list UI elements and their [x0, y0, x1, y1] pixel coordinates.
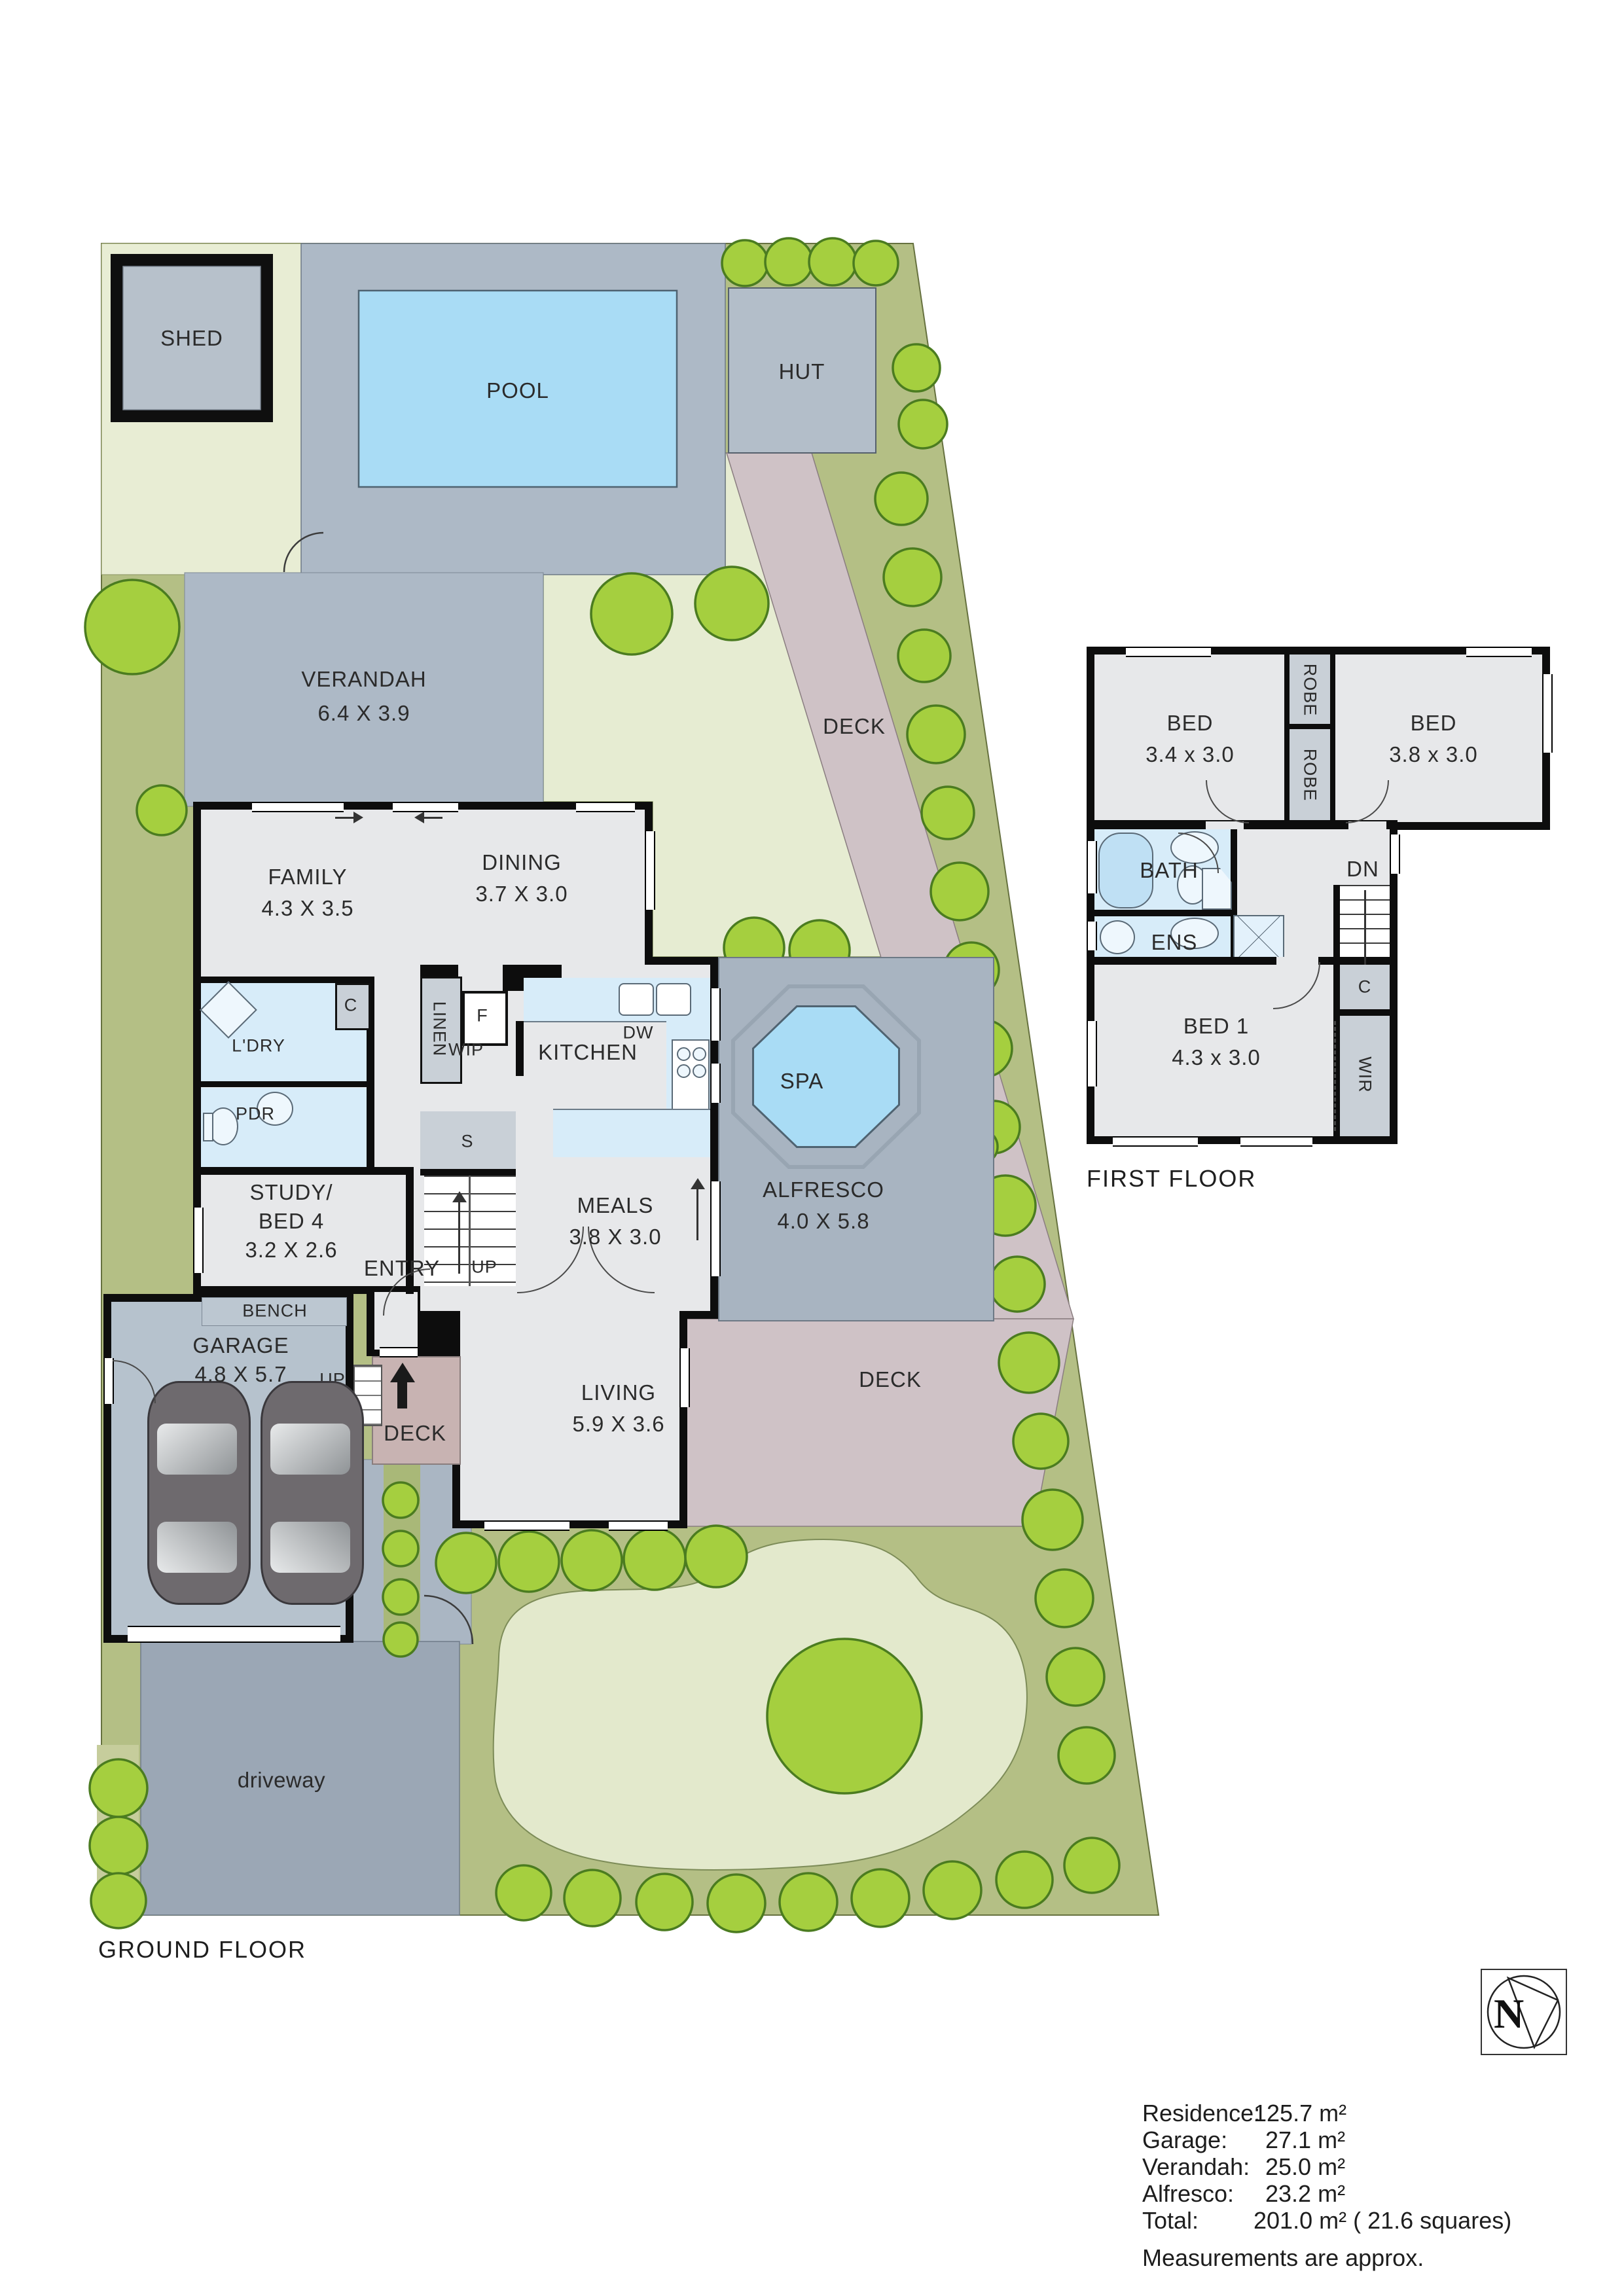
- window: [710, 1064, 721, 1103]
- bed-left-label: BED: [1167, 711, 1214, 736]
- entry-arrow-icon: [390, 1363, 415, 1382]
- window: [710, 988, 721, 1041]
- meals-label: MEALS: [577, 1193, 654, 1218]
- wall: [420, 965, 458, 977]
- wall: [1333, 1009, 1396, 1016]
- robe-upper-label: ROBE: [1300, 664, 1320, 717]
- wir-dashed-line: [1334, 1021, 1336, 1131]
- wall: [1284, 724, 1335, 729]
- alfresco-dims: 4.0 X 5.8: [777, 1209, 869, 1234]
- sliding-door: [710, 1181, 721, 1276]
- shed-label: SHED: [160, 326, 223, 351]
- burner-icon: [677, 1047, 691, 1061]
- area-row: Garage: 27.1 m²: [1142, 2126, 1511, 2153]
- hut-label: HUT: [779, 359, 825, 384]
- garage-door: [128, 1626, 340, 1643]
- dn-label: DN: [1346, 857, 1379, 882]
- window: [1087, 841, 1097, 893]
- bed1-label: BED 1: [1183, 1014, 1249, 1039]
- wir-label: WIR: [1355, 1056, 1375, 1092]
- door-opening: [1348, 821, 1386, 829]
- area-value: 125.7 m²: [1254, 2100, 1346, 2126]
- garage-dims: 4.8 X 5.7: [194, 1362, 287, 1387]
- robe-lower-label: ROBE: [1300, 749, 1320, 802]
- car-rear-window: [157, 1522, 237, 1573]
- window: [1542, 674, 1553, 753]
- alfresco-label: ALFRESCO: [763, 1177, 884, 1202]
- slider-arrow: [424, 817, 442, 819]
- entry-label: ENTRY: [364, 1256, 440, 1281]
- area-row: Residence: 125.7 m²: [1142, 2100, 1511, 2126]
- burner-icon: [693, 1064, 706, 1078]
- cupboard-label: C: [344, 996, 358, 1016]
- car-windshield: [157, 1424, 237, 1475]
- window: [679, 1348, 690, 1407]
- stair-arrow-head: [452, 1191, 467, 1202]
- bench-label: BENCH: [242, 1301, 308, 1321]
- driveway-label: driveway: [238, 1768, 325, 1793]
- front-door: [380, 1347, 418, 1357]
- area-row: Verandah: 25.0 m²: [1142, 2153, 1511, 2180]
- ground-floor-title: GROUND FLOOR: [98, 1936, 306, 1964]
- area-note: Measurements are approx.: [1142, 2244, 1511, 2272]
- family-dims: 4.3 X 3.5: [261, 896, 353, 921]
- area-value: 27.1 m²: [1254, 2126, 1345, 2153]
- deck-rear-label: DECK: [859, 1367, 922, 1392]
- area-label: Garage:: [1142, 2126, 1247, 2153]
- bed-left-dims: 3.4 x 3.0: [1146, 742, 1235, 767]
- area-value: 201.0 m² ( 21.6 squares): [1254, 2207, 1511, 2234]
- window: [576, 802, 635, 812]
- area-schedule: Residence: 125.7 m² Garage: 27.1 m² Vera…: [1142, 2100, 1511, 2272]
- study-label-2: BED 4: [259, 1209, 324, 1234]
- wall: [201, 1167, 406, 1175]
- area-label: Residence:: [1142, 2100, 1247, 2126]
- living-dims: 5.9 X 3.6: [572, 1412, 664, 1437]
- entry-deck-label: DECK: [384, 1421, 446, 1446]
- door-opening: [1206, 821, 1244, 829]
- stair-arrow-line: [458, 1202, 460, 1274]
- fridge-label: F: [477, 1006, 488, 1026]
- ff-closet-label: C: [1358, 977, 1372, 997]
- pool-label: POOL: [486, 378, 549, 403]
- slider-arrow: [353, 812, 363, 823]
- car-icon: [261, 1381, 364, 1605]
- store-label: S: [461, 1132, 473, 1152]
- verandah-dims: 6.4 X 3.9: [317, 701, 410, 726]
- window: [609, 1520, 668, 1531]
- window: [393, 802, 458, 812]
- window: [1240, 1136, 1312, 1147]
- window: [1466, 647, 1532, 657]
- garage-label: GARAGE: [192, 1333, 289, 1358]
- area-row: Alfresco: 23.2 m²: [1142, 2180, 1511, 2207]
- bed1-dims: 4.3 x 3.0: [1172, 1045, 1261, 1070]
- bed-right-label: BED: [1411, 711, 1457, 736]
- wall: [1330, 655, 1335, 820]
- car-icon: [147, 1381, 251, 1605]
- wip-label: WIP: [448, 1040, 484, 1060]
- family-label: FAMILY: [268, 865, 348, 889]
- sink-icon: [619, 983, 654, 1016]
- laundry-label: L'DRY: [232, 1036, 285, 1056]
- ens-label: ENS: [1151, 930, 1198, 955]
- wall: [420, 1169, 516, 1175]
- window: [1390, 834, 1400, 874]
- bed-right-dims: 3.8 x 3.0: [1389, 742, 1478, 767]
- area-label: Total:: [1142, 2207, 1247, 2234]
- cistern-icon: [203, 1113, 213, 1141]
- window: [484, 1520, 569, 1531]
- window: [252, 802, 344, 812]
- study-dims: 3.2 X 2.6: [245, 1238, 337, 1263]
- area-value: 25.0 m²: [1254, 2153, 1345, 2180]
- study-label-1: STUDY/: [249, 1180, 333, 1205]
- wall: [201, 1081, 368, 1087]
- window: [1113, 1136, 1198, 1147]
- linen-label: LINEN: [429, 1001, 450, 1057]
- car-windshield: [270, 1424, 350, 1475]
- spa-water: [754, 1007, 898, 1146]
- wall: [1094, 910, 1237, 916]
- area-row: Total: 201.0 m² ( 21.6 squares): [1142, 2207, 1511, 2234]
- entry-arrow-icon: [397, 1381, 407, 1408]
- entry-deck: [372, 1356, 461, 1465]
- wall: [1333, 965, 1340, 1009]
- slider-arrow: [691, 1178, 705, 1189]
- window: [193, 1208, 204, 1273]
- wall: [1333, 885, 1340, 957]
- deck-path-label: DECK: [823, 714, 886, 739]
- dishwasher-label: DW: [623, 1023, 654, 1043]
- toilet-icon: [1100, 920, 1135, 954]
- alfresco-area: [718, 957, 994, 1321]
- kitchen-island: [553, 1109, 710, 1157]
- first-floor-title: FIRST FLOOR: [1087, 1165, 1256, 1193]
- window: [645, 831, 655, 910]
- powder-label: PDR: [236, 1104, 275, 1124]
- slider-arrow: [414, 812, 424, 823]
- wall: [1284, 655, 1290, 820]
- compass-graphic: N: [1482, 1970, 1566, 2054]
- sink-icon: [656, 983, 691, 1016]
- living-label: LIVING: [581, 1380, 656, 1405]
- area-value: 23.2 m²: [1254, 2180, 1345, 2207]
- dining-dims: 3.7 X 3.0: [475, 882, 568, 906]
- slider-arrow: [696, 1188, 698, 1240]
- burner-icon: [693, 1047, 706, 1061]
- burner-icon: [677, 1064, 691, 1078]
- shower-icon: [1233, 915, 1284, 960]
- car-rear-window: [270, 1522, 350, 1573]
- floor-plan-page: SHED POOL HUT DECK DECK driveway VERANDA…: [0, 0, 1624, 2296]
- area-label: Alfresco:: [1142, 2180, 1247, 2207]
- bed-left-floor: [1094, 655, 1284, 820]
- stair-rail: [469, 1175, 471, 1286]
- slider-arrow: [335, 817, 353, 819]
- bath-label: BATH: [1140, 858, 1199, 883]
- window: [1087, 922, 1097, 950]
- dining-label: DINING: [482, 850, 562, 875]
- stairs-up-label: UP: [471, 1257, 497, 1278]
- verandah-label: VERANDAH: [301, 667, 426, 692]
- compass-n-label: N: [1494, 1990, 1524, 2037]
- window: [1126, 647, 1211, 657]
- north-compass: N: [1481, 1969, 1567, 2055]
- spa-label: SPA: [780, 1069, 824, 1094]
- wall: [516, 1021, 524, 1076]
- area-label: Verandah:: [1142, 2153, 1247, 2180]
- window: [1087, 1021, 1097, 1086]
- kitchen-label: KITCHEN: [538, 1040, 638, 1065]
- meals-dims: 3.8 X 3.0: [569, 1225, 661, 1249]
